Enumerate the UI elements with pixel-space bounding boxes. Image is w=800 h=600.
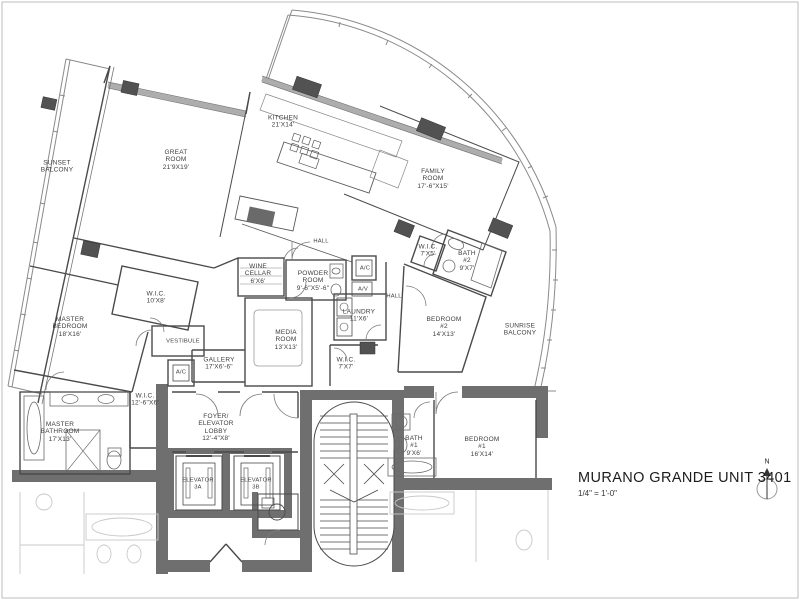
floorplan-sheet: SUNSET BALCONY GREAT ROOM 21'9X19' KITCH… (0, 0, 800, 600)
plan-scale: 1/4" = 1'-0" (578, 489, 788, 498)
plan-title: MURANO GRANDE UNIT 3401 (578, 470, 788, 486)
core-walls (12, 384, 552, 574)
stairwell (314, 402, 394, 566)
north-label: N (764, 459, 769, 466)
title-block: MURANO GRANDE UNIT 3401 1/4" = 1'-0" (578, 470, 788, 498)
balcony-edges (8, 10, 558, 394)
bath-fixtures (24, 236, 502, 476)
floorplan-drawing (0, 0, 800, 600)
